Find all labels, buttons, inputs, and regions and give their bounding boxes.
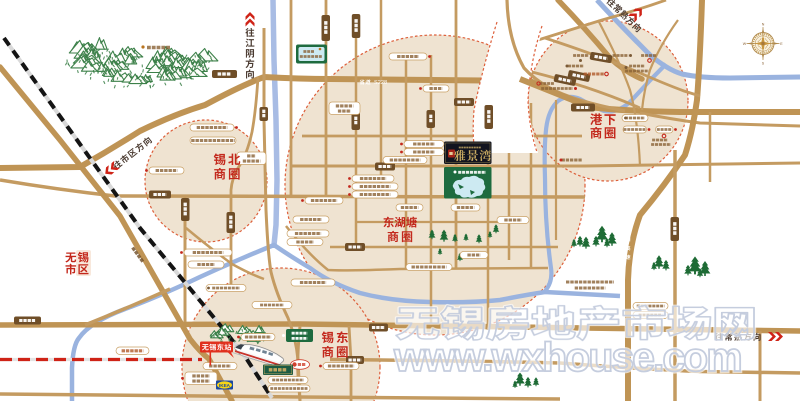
svg-text:W: W [743, 42, 747, 46]
svg-text:www.wxhouse.com: www.wxhouse.com [393, 334, 741, 380]
svg-text:S228: S228 [374, 80, 387, 86]
svg-text:IKEA: IKEA [219, 383, 231, 388]
svg-text:N: N [762, 23, 765, 27]
